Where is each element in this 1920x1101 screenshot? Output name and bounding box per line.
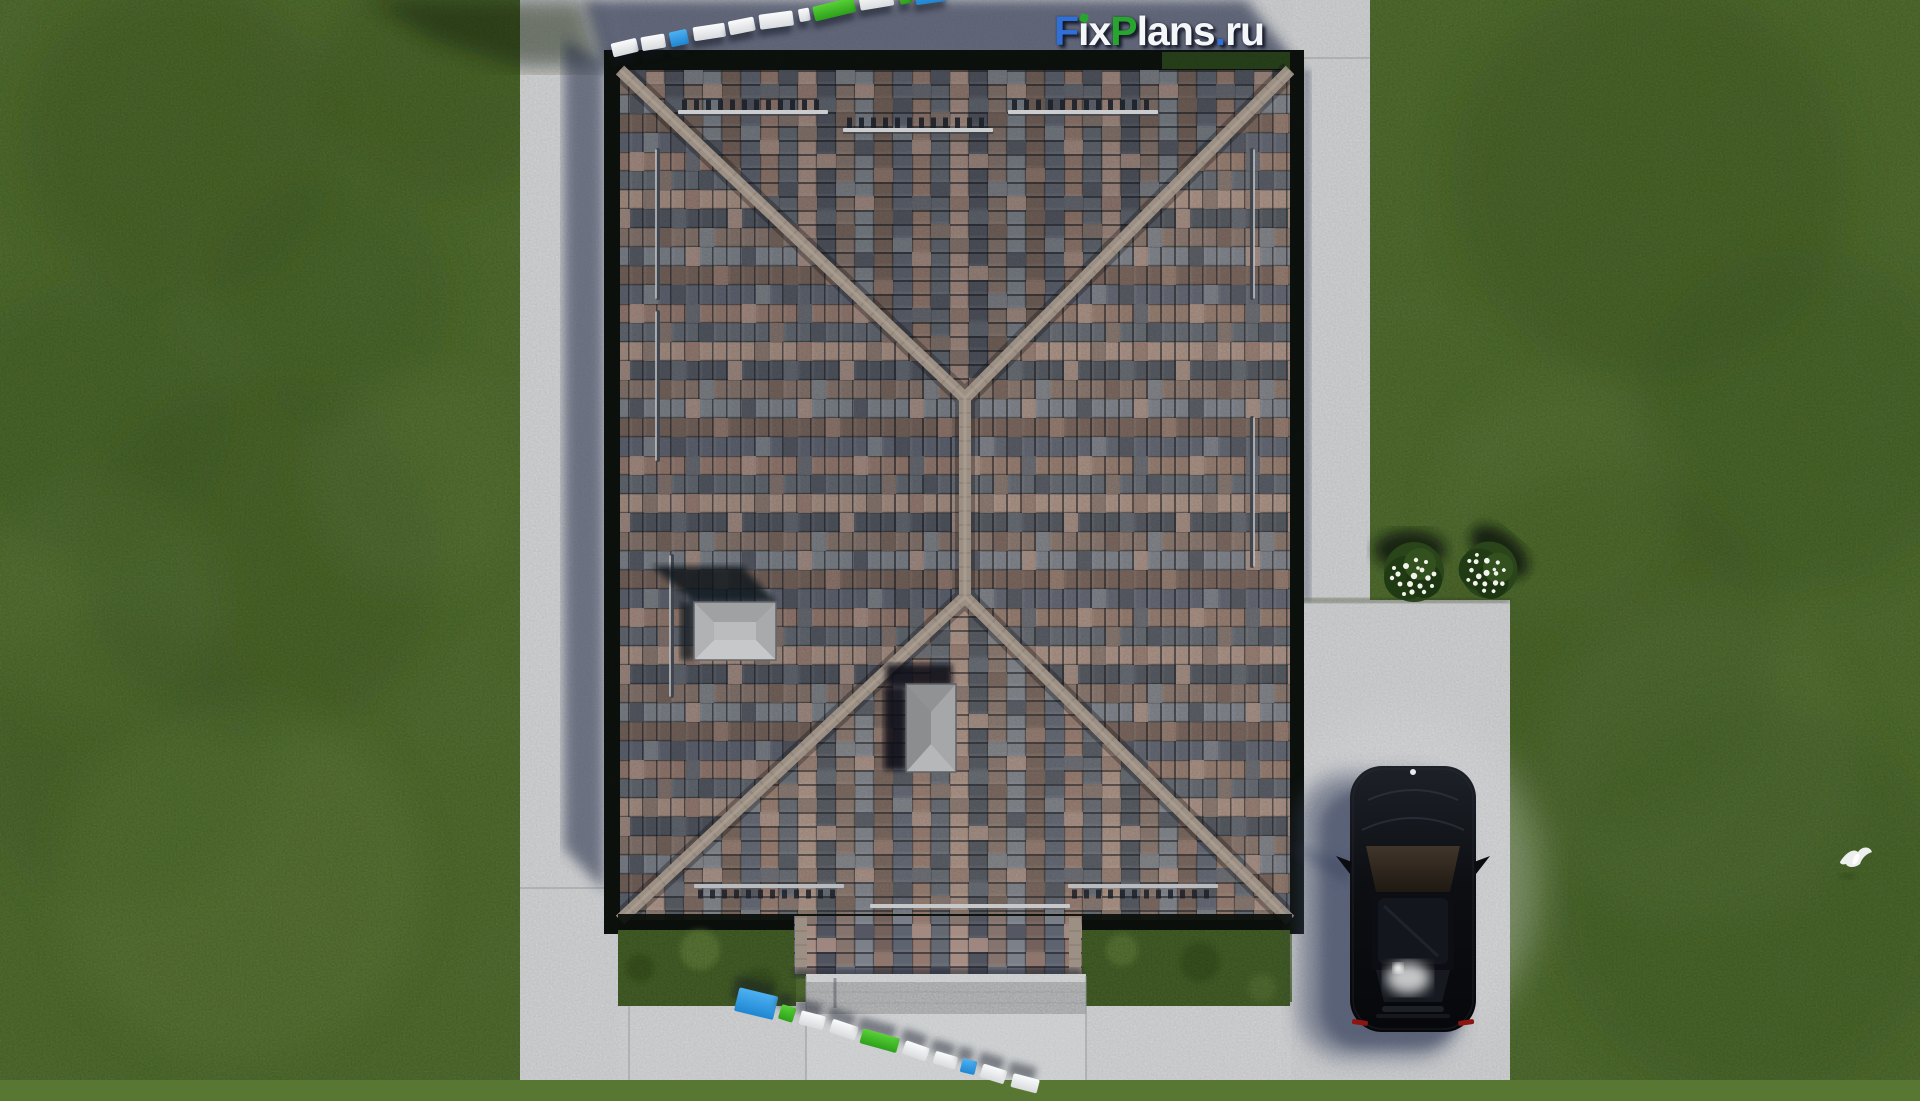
aerial-site-render: FıxPlans.ru [0, 0, 1920, 1080]
scale-block-white [611, 38, 640, 58]
scale-block-blue [668, 28, 689, 47]
chimney-2-shadow [886, 664, 952, 686]
scale-block-white [829, 1019, 859, 1041]
watermark-logo: FıxPlans.ru [1054, 8, 1264, 55]
scale-block-white [933, 1050, 959, 1069]
scale-block-white [1010, 1073, 1040, 1093]
car [1290, 766, 1490, 1058]
chimney-2 [884, 664, 956, 772]
scale-block-white [979, 1064, 1007, 1085]
scale-block-white [728, 16, 756, 35]
scale-block-white [902, 1040, 930, 1062]
porch-roof [794, 916, 1082, 978]
house-shadow-left [564, 40, 604, 890]
scale-block-blue [960, 1058, 978, 1075]
scale-block-white [798, 7, 811, 22]
scale-block-green [898, 0, 913, 4]
car-antenna [1410, 769, 1416, 775]
scale-block-green [778, 1004, 797, 1023]
scene-canvas [0, 0, 1920, 1080]
logo-letter: ru [1225, 8, 1264, 55]
logo-letter: ı [1078, 8, 1088, 55]
scale-block-white [692, 23, 726, 42]
scale-block-white [859, 0, 895, 11]
scale-block-white [640, 33, 666, 51]
logo-letter: x [1088, 8, 1110, 55]
car-windshield [1366, 846, 1460, 892]
house-roof [604, 50, 1304, 934]
logo-letter: lans [1137, 8, 1215, 55]
scale-block-white [798, 1010, 826, 1030]
logo-letter: F [1054, 8, 1078, 55]
logo-letter: P [1110, 8, 1136, 55]
scale-block-green [812, 0, 856, 21]
logo-letter: . [1215, 8, 1225, 55]
scale-block-white [758, 10, 794, 29]
